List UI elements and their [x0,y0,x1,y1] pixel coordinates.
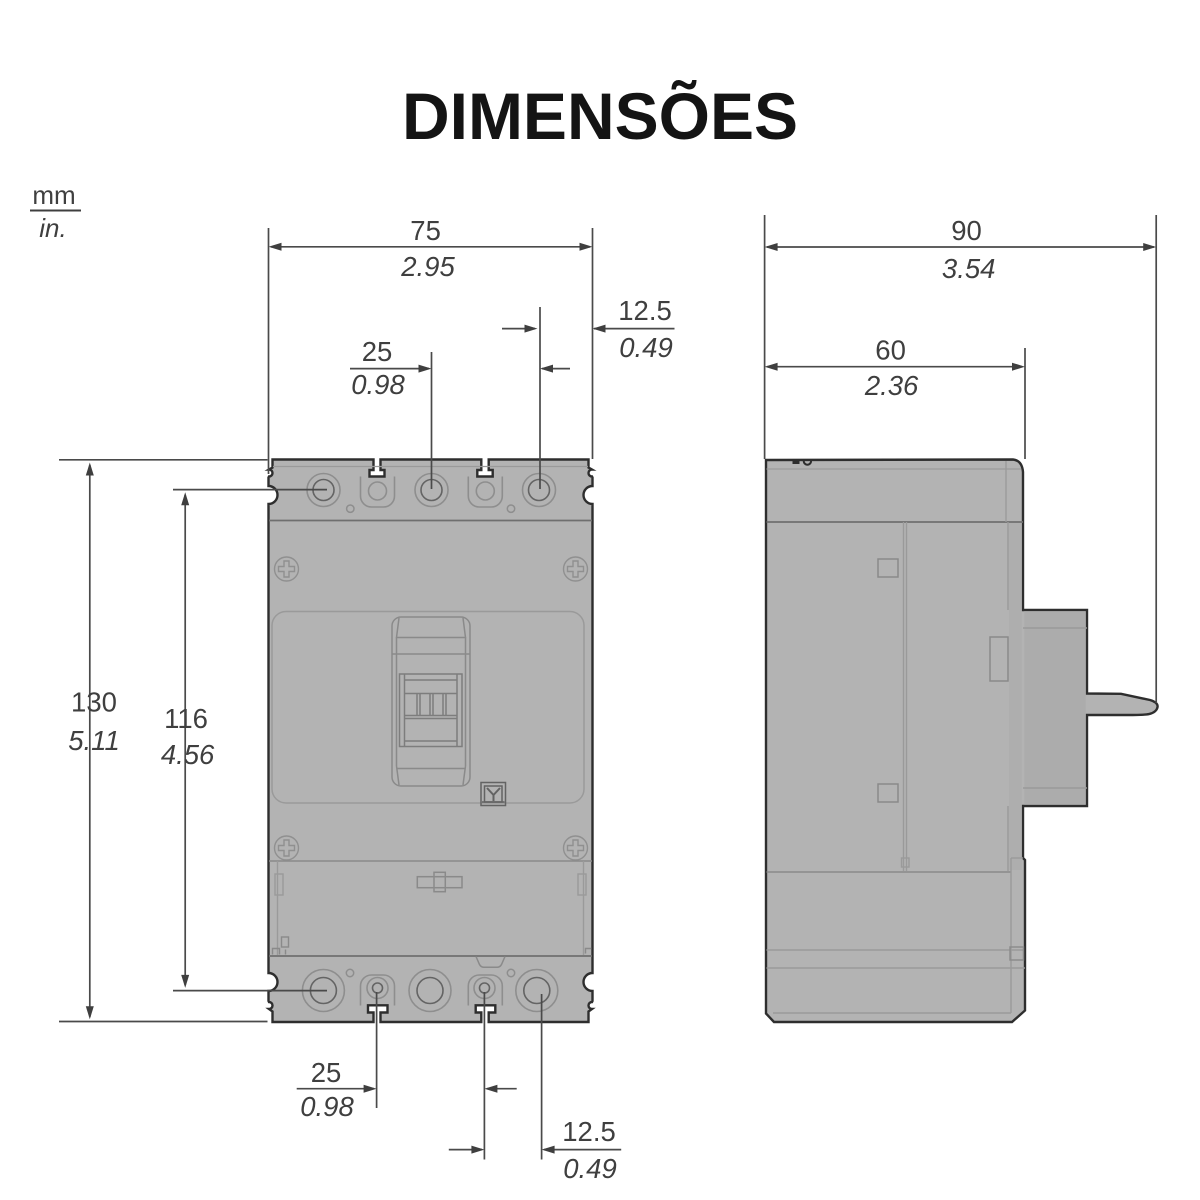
svg-text:90: 90 [951,215,982,246]
svg-text:in.: in. [39,213,66,243]
svg-text:25: 25 [311,1057,342,1088]
svg-text:3.54: 3.54 [942,253,996,284]
svg-text:0.49: 0.49 [563,1153,617,1184]
svg-text:0.98: 0.98 [300,1091,354,1122]
svg-text:mm: mm [32,180,75,210]
svg-text:5.11: 5.11 [68,725,119,756]
svg-text:2.95: 2.95 [400,251,455,282]
svg-text:75: 75 [410,215,441,246]
svg-text:60: 60 [875,335,906,366]
svg-text:12.5: 12.5 [618,295,672,326]
svg-text:130: 130 [71,687,117,718]
svg-text:4.56: 4.56 [161,739,215,770]
svg-text:116: 116 [164,703,208,734]
svg-text:2.36: 2.36 [864,370,919,401]
svg-text:12.5: 12.5 [562,1116,616,1147]
svg-text:0.49: 0.49 [619,332,673,363]
svg-text:0.98: 0.98 [351,369,405,400]
svg-text:DIMENSÕES: DIMENSÕES [402,79,798,153]
svg-text:25: 25 [362,336,393,367]
